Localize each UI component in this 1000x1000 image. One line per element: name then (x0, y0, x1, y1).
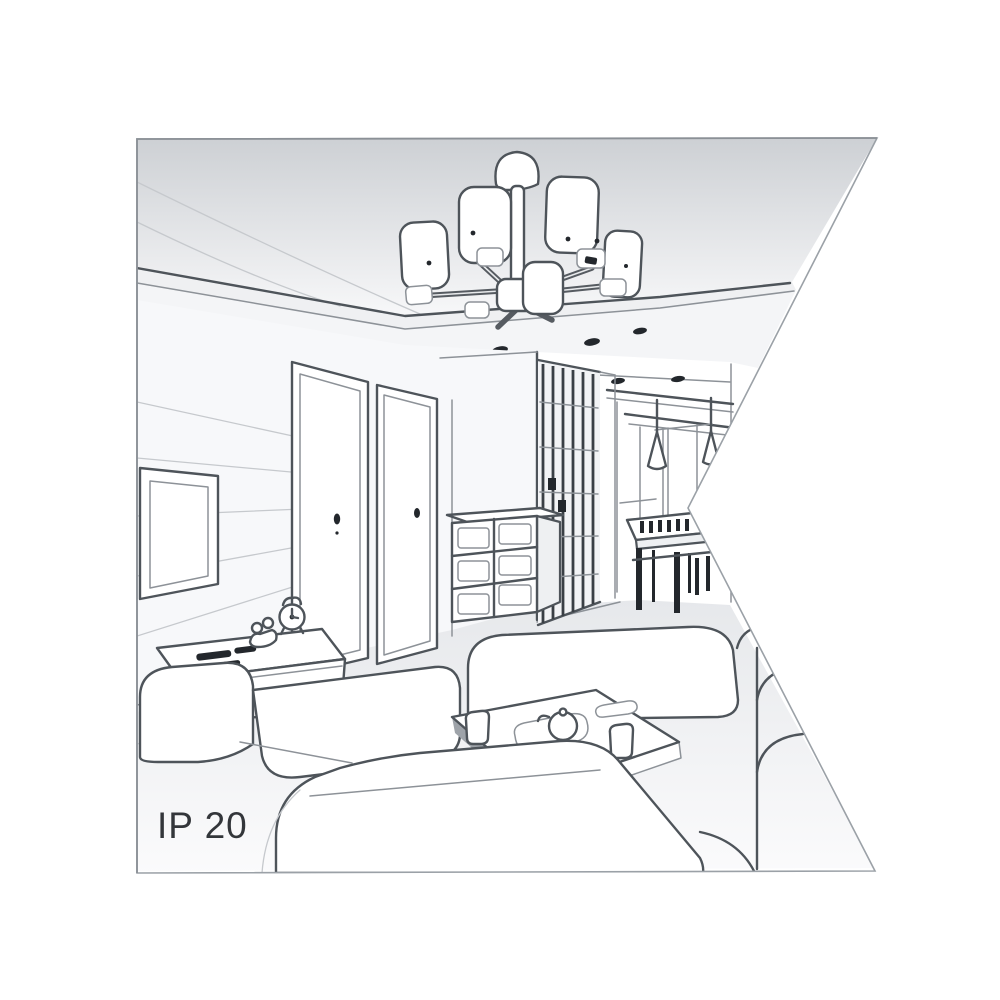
interior-door-right (377, 385, 437, 664)
ip-rating-label: IP 20 (157, 805, 248, 846)
interior-door-left (292, 362, 368, 676)
room-sketch: IP 20 (0, 0, 1000, 1000)
flat-screen-tv (140, 468, 218, 599)
chest-of-drawers (447, 508, 563, 622)
product-image-page: IP 20 (0, 0, 1000, 1000)
